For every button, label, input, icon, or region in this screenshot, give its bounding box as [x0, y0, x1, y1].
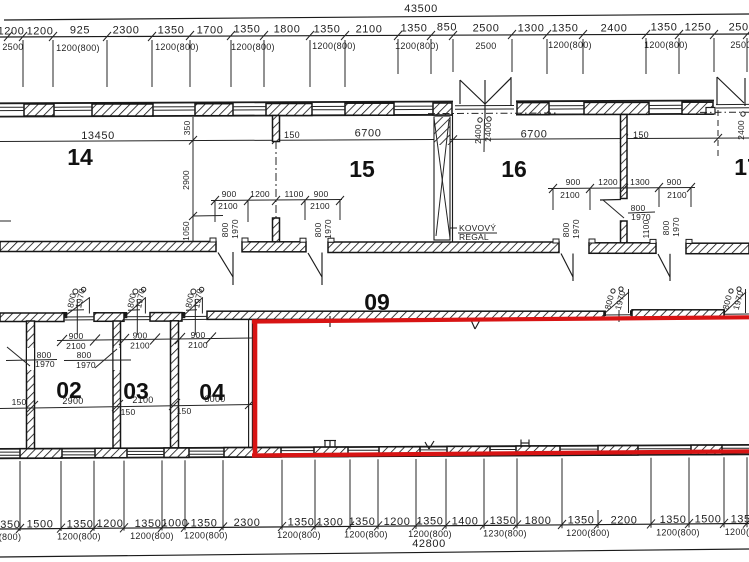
svg-text:1350: 1350	[191, 517, 218, 529]
svg-text:1200(800): 1200(800)	[277, 530, 321, 540]
svg-text:1350: 1350	[288, 517, 315, 529]
svg-text:1100: 1100	[284, 189, 303, 199]
svg-text:2100: 2100	[310, 201, 330, 211]
svg-text:2500: 2500	[730, 40, 749, 50]
svg-text:2500: 2500	[729, 22, 749, 34]
svg-text:2500: 2500	[473, 23, 500, 35]
svg-text:1350: 1350	[67, 518, 94, 530]
svg-text:900: 900	[222, 189, 237, 199]
svg-text:1200(800): 1200(800)	[656, 527, 700, 537]
svg-text:43500: 43500	[404, 3, 438, 15]
svg-text:150: 150	[284, 130, 300, 140]
svg-text:1350: 1350	[552, 23, 579, 35]
svg-text:900: 900	[69, 331, 84, 341]
svg-text:900: 900	[133, 331, 148, 341]
svg-text:42800: 42800	[412, 538, 446, 550]
svg-text:6700: 6700	[355, 128, 382, 140]
svg-text:1200: 1200	[97, 518, 124, 530]
svg-text:1350: 1350	[731, 513, 749, 525]
svg-text:2500: 2500	[475, 41, 496, 51]
svg-text:1300: 1300	[518, 23, 545, 35]
svg-text:1970: 1970	[35, 359, 55, 369]
svg-text:1200: 1200	[0, 26, 24, 38]
svg-text:1350: 1350	[490, 515, 517, 527]
svg-text:900: 900	[314, 189, 329, 199]
svg-text:2400: 2400	[473, 124, 483, 144]
svg-text:2100: 2100	[667, 190, 687, 200]
svg-text:925: 925	[70, 25, 90, 37]
svg-text:150: 150	[177, 406, 192, 416]
svg-text:900: 900	[191, 330, 206, 340]
svg-text:1200(: 1200(	[725, 527, 749, 537]
svg-text:800: 800	[313, 223, 323, 238]
svg-text:1300: 1300	[317, 517, 344, 529]
svg-text:2300: 2300	[234, 517, 261, 529]
svg-text:2100: 2100	[560, 190, 580, 200]
svg-text:150: 150	[121, 407, 136, 417]
svg-text:1500: 1500	[695, 514, 722, 526]
svg-text:04: 04	[199, 379, 225, 405]
svg-text:800: 800	[561, 223, 571, 238]
svg-text:03: 03	[123, 378, 149, 404]
svg-text:1200: 1200	[598, 177, 618, 187]
svg-text:900: 900	[667, 177, 682, 187]
svg-text:2900: 2900	[181, 170, 191, 190]
svg-text:2100: 2100	[130, 341, 150, 351]
svg-text:1200(800): 1200(800)	[130, 531, 174, 541]
svg-text:1100: 1100	[641, 219, 651, 238]
svg-text:1350: 1350	[660, 514, 687, 526]
svg-text:1800: 1800	[274, 24, 301, 36]
svg-text:800: 800	[77, 350, 92, 360]
svg-text:13450: 13450	[81, 130, 115, 142]
svg-text:1200(800): 1200(800)	[395, 41, 439, 51]
svg-text:1350: 1350	[401, 23, 428, 35]
svg-text:16: 16	[501, 156, 527, 182]
svg-text:2100: 2100	[356, 24, 383, 36]
svg-text:1300: 1300	[630, 177, 650, 187]
svg-text:15: 15	[349, 156, 375, 182]
svg-text:1200: 1200	[250, 189, 270, 199]
svg-text:1200(800): 1200(800)	[644, 40, 688, 50]
svg-text:2400: 2400	[736, 120, 746, 140]
svg-text:1200: 1200	[27, 26, 54, 38]
svg-text:1350: 1350	[417, 516, 444, 528]
svg-text:1350: 1350	[0, 519, 20, 531]
svg-text:1200(800): 1200(800)	[155, 42, 199, 52]
svg-text:1200(800): 1200(800)	[344, 530, 388, 540]
svg-text:1400: 1400	[452, 516, 479, 528]
svg-text:2100: 2100	[188, 340, 208, 350]
svg-text:2400: 2400	[601, 23, 628, 35]
svg-text:1350: 1350	[234, 24, 261, 36]
svg-text:150: 150	[12, 397, 27, 407]
svg-text:1000: 1000	[162, 518, 189, 530]
svg-text:1200(800): 1200(800)	[312, 41, 356, 51]
svg-text:1200(800): 1200(800)	[184, 531, 228, 541]
svg-text:1230(800): 1230(800)	[483, 529, 527, 539]
svg-text:17: 17	[734, 154, 749, 180]
svg-text:2100: 2100	[218, 201, 238, 211]
svg-text:800: 800	[661, 221, 671, 236]
svg-text:800: 800	[220, 223, 230, 238]
svg-text:1200(800): 1200(800)	[231, 42, 275, 52]
svg-text:1350: 1350	[158, 25, 185, 37]
svg-text:(800): (800)	[0, 532, 21, 542]
svg-text:6700: 6700	[521, 129, 548, 141]
svg-text:1200(800): 1200(800)	[56, 43, 100, 53]
svg-text:1200(800): 1200(800)	[566, 528, 610, 538]
svg-text:2200: 2200	[611, 514, 638, 526]
svg-text:02: 02	[56, 377, 82, 403]
svg-text:1350: 1350	[568, 515, 595, 527]
svg-text:1350: 1350	[314, 24, 341, 36]
svg-text:350: 350	[182, 121, 192, 136]
svg-text:1700: 1700	[197, 25, 224, 37]
svg-text:1970: 1970	[323, 219, 333, 239]
svg-text:1250: 1250	[685, 22, 712, 34]
svg-text:900: 900	[566, 177, 581, 187]
svg-text:1350: 1350	[651, 22, 678, 34]
svg-text:2300: 2300	[113, 25, 140, 37]
svg-text:1500: 1500	[27, 519, 54, 531]
svg-text:850: 850	[437, 22, 457, 34]
svg-text:1200(800): 1200(800)	[548, 40, 592, 50]
svg-text:1350: 1350	[135, 518, 162, 530]
svg-text:2500: 2500	[2, 42, 23, 52]
svg-text:1970: 1970	[76, 360, 96, 370]
svg-text:150: 150	[633, 130, 649, 140]
svg-text:1200: 1200	[384, 516, 411, 528]
svg-text:1800: 1800	[525, 515, 552, 527]
svg-text:1200(800): 1200(800)	[57, 532, 101, 542]
svg-text:1050: 1050	[181, 221, 191, 241]
svg-text:1350: 1350	[349, 516, 376, 528]
svg-text:1970: 1970	[671, 217, 681, 237]
svg-text:1970: 1970	[571, 219, 581, 239]
svg-text:1970: 1970	[230, 219, 240, 239]
svg-text:14: 14	[67, 144, 93, 170]
